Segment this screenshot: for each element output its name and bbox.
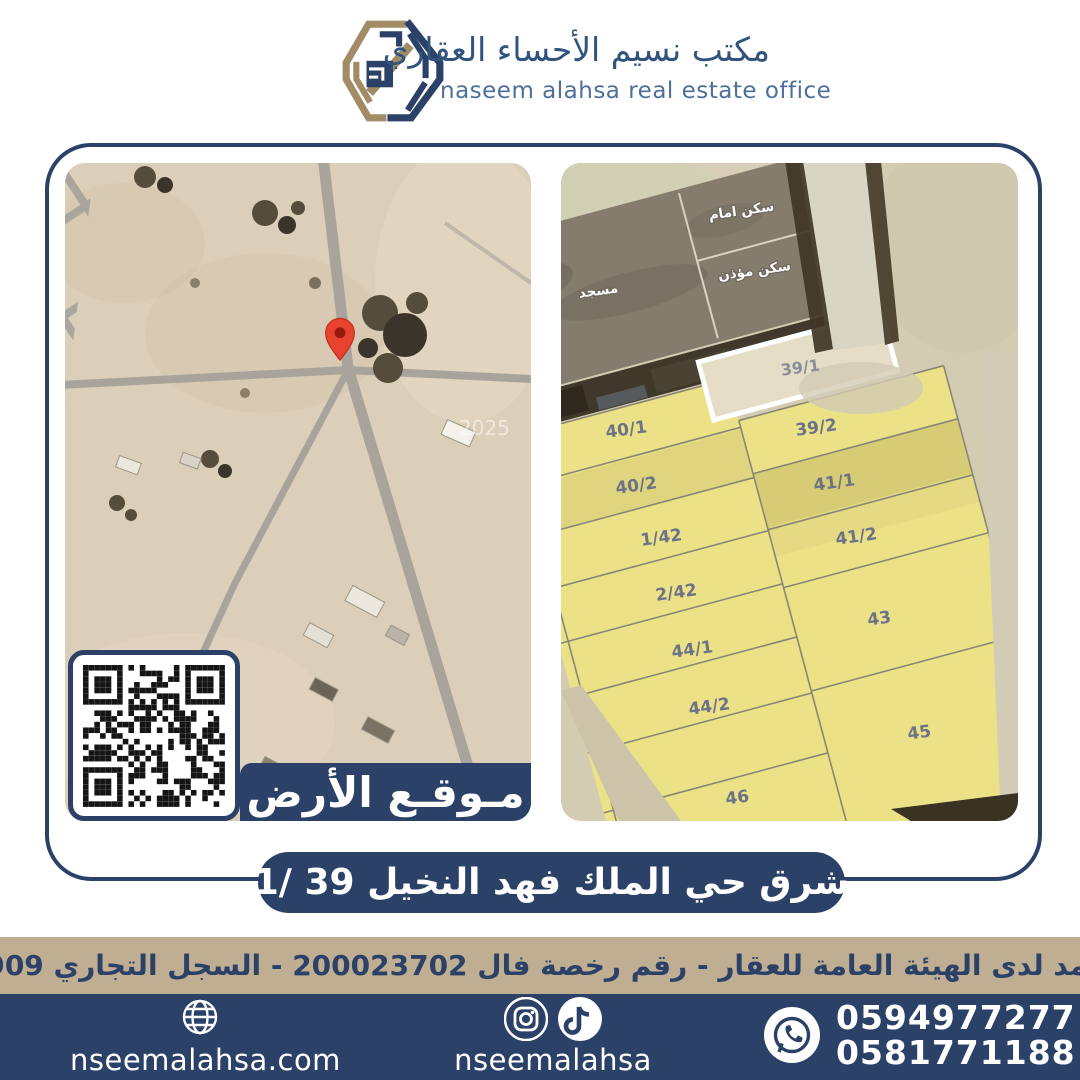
phone-block: 0594977277 0581771188 <box>762 1000 1076 1070</box>
social-handle: nseemalahsa <box>420 1043 686 1077</box>
license-bar-text: مسوق معتمد لدى الهيئة العامة للعقار - رق… <box>0 949 1080 982</box>
address-banner-text: شرق حي الملك فهد النخيل 39 /1 <box>254 862 850 903</box>
license-bar: مسوق معتمد لدى الهيئة العامة للعقار - رق… <box>0 937 1080 994</box>
parcel-plan-map: سكن امام سكن مؤذن مسجد 39/1 40/1 40/2 1/… <box>561 163 1018 821</box>
brand-name-english: naseem alahsa real estate office <box>440 78 770 104</box>
phone-numbers: 0594977277 0581771188 <box>836 1000 1076 1070</box>
website-url: nseemalahsa.com <box>70 1043 330 1077</box>
real-estate-flyer: { "header": { "brand_name_ar": "مكتب نسي… <box>0 0 1080 1080</box>
parcel-label: 43 <box>866 607 892 630</box>
header: مكتب نسيم الأحساء العقاري naseem alahsa … <box>0 0 1080 143</box>
footer: nseemalahsa.com nseemalahsa <box>0 994 1080 1080</box>
brand-text-block: مكتب نسيم الأحساء العقاري naseem alahsa … <box>440 30 770 104</box>
phone-number-1: 0594977277 <box>836 1000 1076 1035</box>
instagram-icon <box>504 997 548 1041</box>
address-banner: شرق حي الملك فهد النخيل 39 /1 <box>258 852 845 913</box>
imagery-year-watermark: 2025 <box>459 416 510 440</box>
land-location-banner-label: مـوقـع الأرض <box>246 768 524 817</box>
land-location-banner: مـوقـع الأرض <box>240 763 531 821</box>
website-block: nseemalahsa.com <box>70 996 330 1077</box>
parcel-label: 45 <box>906 721 932 744</box>
social-block: nseemalahsa <box>420 996 686 1077</box>
qr-code <box>68 650 240 821</box>
qr-code-pattern <box>83 665 225 807</box>
parcel-label: 46 <box>724 786 750 809</box>
whatsapp-icon <box>762 1005 822 1065</box>
phone-number-2: 0581771188 <box>836 1035 1076 1070</box>
brand-name-arabic: مكتب نسيم الأحساء العقاري <box>440 30 770 69</box>
globe-icon <box>179 996 221 1038</box>
tiktok-icon <box>557 996 603 1042</box>
